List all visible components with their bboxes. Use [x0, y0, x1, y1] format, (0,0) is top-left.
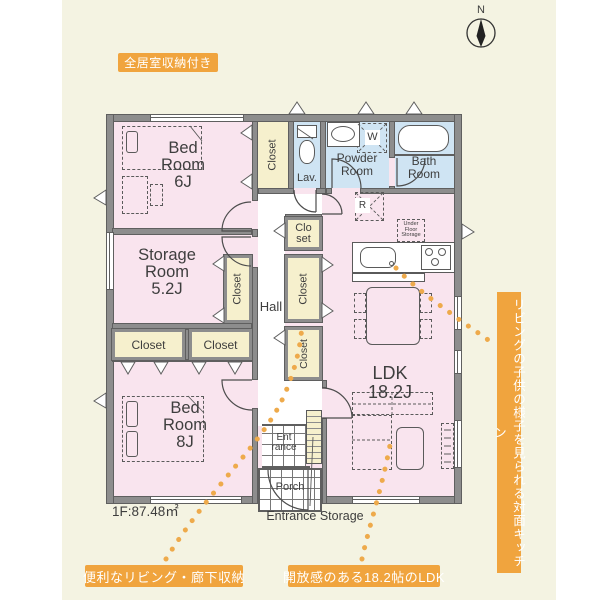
bed-8j-pillow-2 — [126, 431, 138, 457]
toilet-tank — [297, 125, 317, 138]
entrance-storage-label: Entrance Storage — [250, 510, 380, 523]
bedroom6-closet: Closet — [258, 121, 288, 188]
hall-label: Hall — [246, 300, 296, 313]
bedroom8-closet-left: Closet — [112, 329, 185, 360]
powder-room-label-2: Room — [324, 165, 390, 177]
burner-2 — [438, 248, 446, 256]
hall-closet-top-label-2: set — [296, 233, 311, 245]
tv-board — [441, 423, 454, 469]
hall-corridor — [258, 217, 285, 426]
storage-room-label-3: 5.2J — [127, 281, 207, 298]
dining-chair-1 — [354, 293, 366, 313]
bedroom6-closet-label: Closet — [267, 139, 279, 170]
bedroom6-label-3: 6J — [143, 174, 223, 191]
washer-label: W — [365, 130, 380, 145]
storage-room-closet-label: Closet — [232, 273, 244, 304]
window-right-2 — [454, 350, 462, 374]
refrigerator-label: R — [355, 198, 370, 213]
toilet-bowl — [299, 140, 315, 164]
feature-badge-bottom-left: 便利なリビング・廊下収納 — [85, 565, 243, 587]
powder-sink — [331, 126, 355, 142]
dining-table — [366, 287, 420, 345]
sink-drain — [389, 261, 394, 266]
wall-outer-left — [106, 114, 114, 504]
dining-chair-2 — [354, 319, 366, 339]
closet-band-front-line — [112, 360, 252, 362]
floor-area-label: 1F:87.48㎡ — [112, 505, 242, 519]
bath-room-label-1: Bath — [392, 155, 456, 167]
burner-3 — [431, 258, 439, 266]
bedroom6-label-1: Bed — [143, 140, 223, 157]
window-right-3 — [454, 420, 462, 468]
floorplan-page: { "compass": {"label": "N"}, "badges": {… — [0, 0, 600, 600]
lavatory-label: Lav. — [290, 173, 324, 184]
bedroom6-label-2: Room — [143, 157, 223, 174]
hall-closet-bottom-label: Closet — [297, 339, 309, 369]
wall-wet-bottom-1 — [258, 188, 294, 194]
hall-closet-bottom: Closet — [285, 327, 322, 380]
bedroom8-label-1: Bed — [145, 400, 225, 417]
compass-north-label: N — [471, 5, 491, 16]
dining-chair-4 — [420, 319, 432, 339]
wall-hall-left-2 — [252, 229, 258, 237]
wall-wet-bottom-3 — [326, 188, 332, 194]
bed-6j-pillow — [126, 131, 138, 153]
bedroom8-label-2: Room — [145, 417, 225, 434]
entrance-storage-cabinet — [306, 410, 322, 464]
ufs-label-3: Storage — [401, 232, 420, 238]
powder-room-label-1: Powder — [324, 152, 390, 164]
wall-bed6-bottom — [112, 228, 252, 235]
feature-badge-bottom-center: 開放感のある18.2帖のLDK — [288, 565, 440, 587]
bed-8j-pillow-1 — [126, 401, 138, 427]
wall-hall-left-3 — [252, 267, 258, 380]
feature-badge-right-vertical: リビングの子供の様子を見られる対面キッチン — [497, 292, 521, 573]
dining-chair-3 — [420, 293, 432, 313]
wall-ldk-1 — [322, 380, 327, 388]
window-bottom-right — [352, 496, 420, 504]
wall-ldk-2 — [322, 418, 327, 504]
window-top — [150, 114, 244, 122]
window-left — [106, 232, 114, 290]
sofa-chaise — [352, 415, 392, 470]
kitchen-counter-lip — [352, 273, 425, 282]
storage-room-label-1: Storage — [127, 247, 207, 264]
window-right-1 — [454, 296, 462, 330]
hall-closet-middle-label: Closet — [298, 273, 310, 304]
feature-badge-top: 全居室収納付き — [118, 53, 218, 72]
bathtub — [398, 125, 449, 152]
coffee-table — [396, 427, 424, 470]
ldk-label-2: 18.2J — [350, 383, 430, 401]
entrance-label-2: rance — [262, 443, 306, 453]
bedroom8-closet-right: Closet — [189, 329, 252, 360]
burner-1 — [425, 248, 433, 256]
bedroom8-label-3: 8J — [145, 434, 225, 451]
bedroom8-closet-right-label: Closet — [203, 339, 237, 351]
hall-closet-top: Closet — [285, 217, 322, 250]
bath-room-label-2: Room — [392, 168, 456, 180]
wall-wet-bottom-2 — [316, 188, 326, 194]
window-bottom-left — [150, 496, 242, 504]
storage-room-label-2: Room — [127, 264, 207, 281]
ldk-label-1: LDK — [350, 364, 430, 382]
under-floor-storage-box: Under Floor Storage — [397, 219, 425, 242]
bedroom8-closet-left-label: Closet — [131, 339, 165, 351]
porch-label: Porch — [264, 482, 316, 493]
